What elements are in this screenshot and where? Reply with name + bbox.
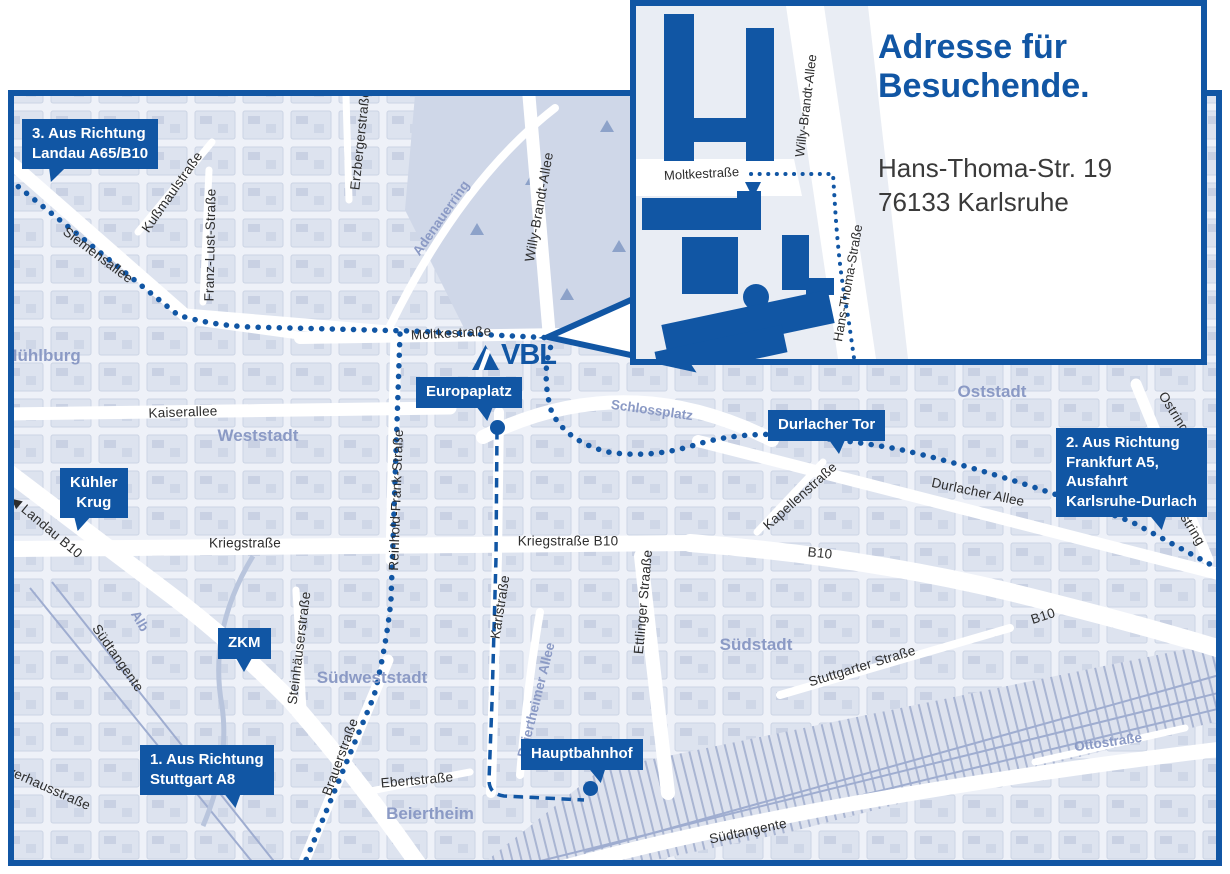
district-oststadt: Oststadt [958, 382, 1027, 402]
district-suedweststadt: Südweststadt [317, 668, 428, 688]
callout-pointer [1150, 516, 1169, 530]
callout-pointer [236, 658, 252, 672]
vbl-logo-text: VBL [501, 341, 556, 370]
callout-pointer [589, 769, 608, 783]
callout-europaplatz: Europaplatz [416, 377, 522, 408]
district-muehlburg: Mühlburg [8, 346, 81, 366]
callout-landau: 3. Aus Richtung Landau A65/B10 [22, 119, 158, 169]
callout-hauptbahnhof: Hauptbahnhof [521, 739, 643, 770]
callout-durlacher-tor: Durlacher Tor [768, 410, 885, 441]
hauptbahnhof-marker-dot [583, 781, 598, 796]
callout-pointer [225, 794, 244, 808]
street-label-kriegstrasse: Kriegstraße [209, 536, 281, 551]
callout-zkm: ZKM [218, 628, 271, 659]
inset-title: Adresse für Besuchende. [878, 28, 1090, 106]
inset-building-map: Moltkestraße Willy-Brandt-Allee Hans-Tho… [636, 6, 916, 359]
street-label-kriegstrasse-b10: Kriegstraße B10 [518, 534, 619, 549]
district-suedstadt: Südstadt [720, 635, 793, 655]
street-label-kaiserallee: Kaiserallee [148, 403, 217, 420]
street-label-franz-lust-strasse: Franz-Lust-Straße [202, 188, 219, 301]
callout-pointer [477, 407, 495, 421]
inset-map-graphics [636, 6, 916, 359]
visitor-address: Hans-Thoma-Str. 19 76133 Karlsruhe [878, 152, 1112, 220]
europaplatz-marker-dot [490, 420, 505, 435]
vbl-directions-map: Mühlburg Weststadt Oststadt Südstadt Süd… [0, 0, 1230, 874]
address-inset: Moltkestraße Willy-Brandt-Allee Hans-Tho… [630, 0, 1207, 365]
callout-frankfurt: 2. Aus Richtung Frankfurt A5, Ausfahrt K… [1056, 428, 1207, 517]
callout-stuttgart: 1. Aus Richtung Stuttgart A8 [140, 745, 274, 795]
district-weststadt: Weststadt [218, 426, 299, 446]
street-label-b10-center: B10 [807, 544, 833, 561]
callout-kuehler-krug: Kühler Krug [60, 468, 128, 518]
district-beiertheim: Beiertheim [386, 804, 474, 824]
vbl-triangle-icon [472, 345, 499, 370]
vbl-logo: VBL [472, 341, 556, 370]
callout-pointer [829, 440, 847, 454]
